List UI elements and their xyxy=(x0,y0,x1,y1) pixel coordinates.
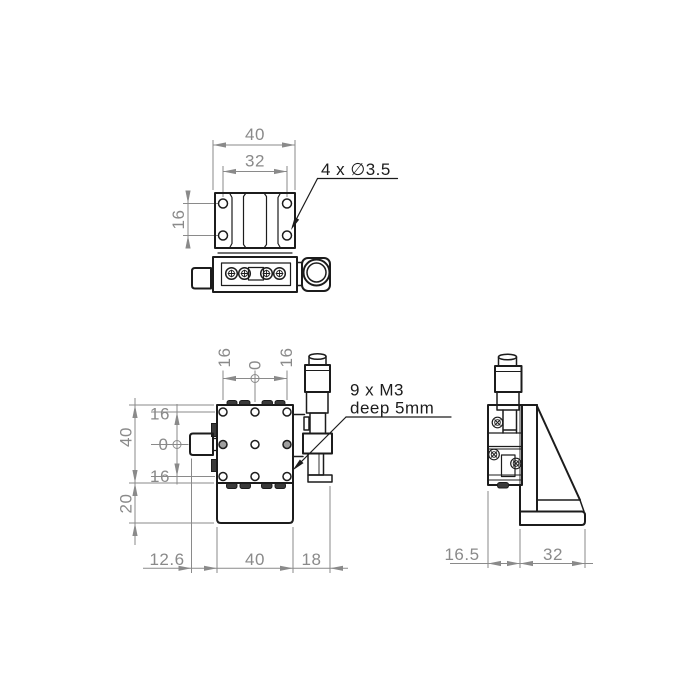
dim-label-front-inner-bottom16: 16 xyxy=(150,467,170,486)
dim-label-side-165: 16.5 xyxy=(444,545,479,564)
screw xyxy=(261,268,273,280)
zero-datum-top xyxy=(250,373,261,384)
dim-label-front-top-right16: 16 xyxy=(277,348,296,368)
dim-label-front-bottom-126: 12.6 xyxy=(149,550,184,569)
spindle-housing-side xyxy=(503,410,517,433)
top-view-part-geometry xyxy=(192,193,330,292)
screw xyxy=(274,268,286,280)
clamp-post xyxy=(308,454,324,476)
thread-callout: 9 x M3 deep 5mm xyxy=(293,381,452,471)
dim-label-front-inner-zero: 0 xyxy=(159,435,169,454)
front-view: 9 x M3 deep 5mm 16 0 16 40 20 16 0 16 12… xyxy=(117,348,452,573)
dim-label-front-left-20: 20 xyxy=(117,494,136,514)
dim-label-front-top-zero: 0 xyxy=(246,360,265,370)
thread-callout-label-line1: 9 x M3 xyxy=(350,381,404,400)
clamp-foot xyxy=(308,475,332,482)
top-view: 4 x ∅3.5 40 32 16 xyxy=(169,125,398,292)
thread-callout-label-line2: deep 5mm xyxy=(350,399,434,418)
micrometer-front-view xyxy=(303,354,332,482)
dim-label-front-left-40: 40 xyxy=(117,427,136,447)
screw xyxy=(489,449,500,460)
side-view: 16.5 32 xyxy=(444,354,593,568)
angle-bracket xyxy=(520,405,585,525)
drawing-page: 4 x ∅3.5 40 32 16 xyxy=(0,0,700,700)
dim-label-top-hole-spacing-y: 16 xyxy=(169,210,188,230)
m3-hole-grid xyxy=(219,408,291,481)
bottom-roller-side xyxy=(498,483,509,489)
dim-label-front-inner-top16: 16 xyxy=(150,405,170,424)
hole-callout-label: 4 x ∅3.5 xyxy=(321,160,391,179)
micrometer-thimble-side xyxy=(495,366,522,392)
adjustment-knob-front-view xyxy=(190,434,213,456)
dim-label-front-bottom-18: 18 xyxy=(302,550,322,569)
micrometer-thimble xyxy=(305,365,330,392)
micrometer-stem xyxy=(310,413,326,434)
hole-callout: 4 x ∅3.5 xyxy=(291,160,398,230)
micrometer-spindle-circle xyxy=(307,263,326,282)
micrometer-cap-top-side xyxy=(499,354,517,360)
front-view-part-geometry xyxy=(190,354,332,523)
micrometer-barrel xyxy=(307,392,329,413)
engineering-drawing-canvas: 4 x ∅3.5 40 32 16 xyxy=(0,0,700,700)
micrometer-clamp-block xyxy=(303,434,332,454)
dim-label-front-top-left16: 16 xyxy=(215,348,234,368)
dim-label-top-overall-width: 40 xyxy=(245,125,265,144)
clamp-screws-top-view xyxy=(226,268,286,280)
dim-label-front-bottom-40: 40 xyxy=(245,550,265,569)
micrometer-side-view xyxy=(495,354,522,410)
dim-label-top-hole-spacing-x: 32 xyxy=(245,152,265,171)
side-view-part-geometry xyxy=(488,354,585,525)
barrel-side-tab xyxy=(304,417,309,430)
screw xyxy=(226,268,238,280)
dim-label-side-32: 32 xyxy=(543,545,563,564)
micrometer-barrel-side xyxy=(497,392,519,410)
platform-clamp-slots xyxy=(230,193,281,248)
adjustment-knob-top-view xyxy=(192,268,211,289)
center-block-side xyxy=(502,455,516,477)
zero-datum-left xyxy=(172,439,183,450)
mounting-holes-top-view xyxy=(219,199,292,240)
screw xyxy=(492,417,503,428)
micrometer-cap-top xyxy=(309,354,326,360)
